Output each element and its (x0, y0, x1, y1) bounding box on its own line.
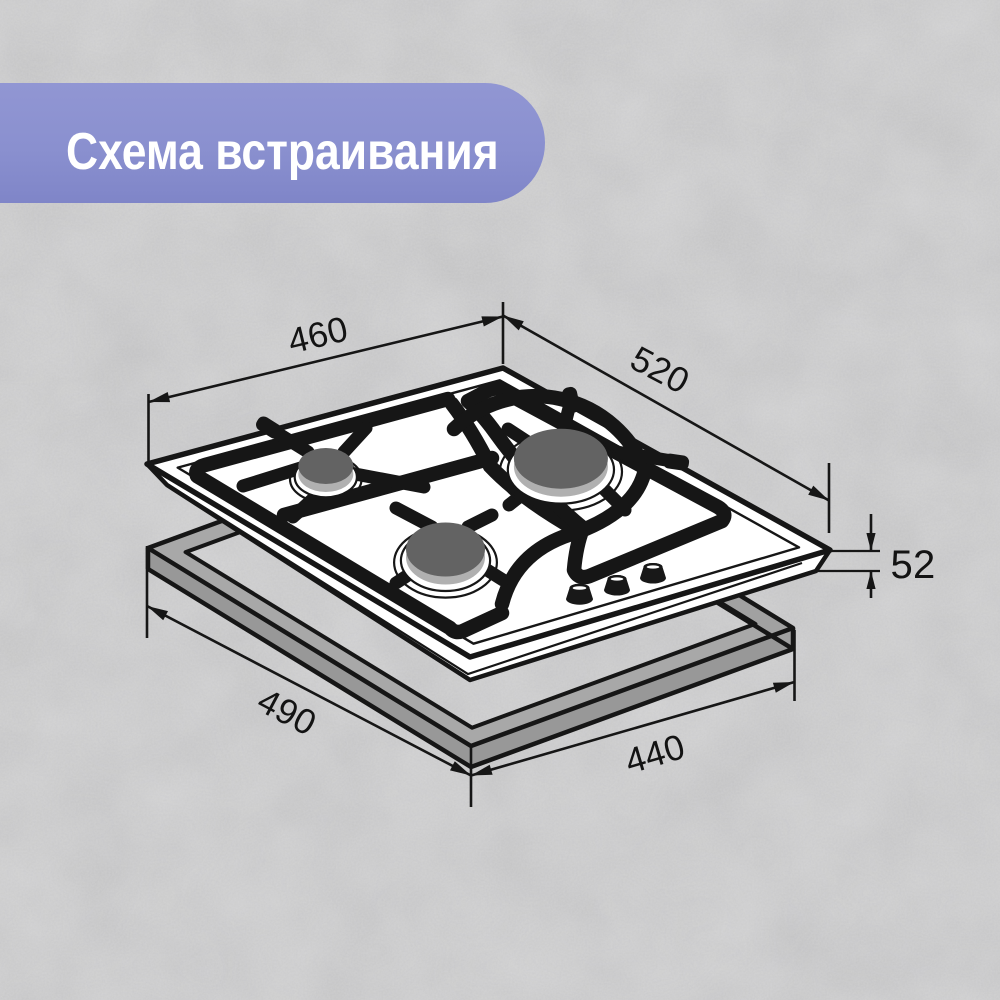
svg-text:52: 52 (890, 543, 935, 587)
svg-text:Схема встраивания: Схема встраивания (66, 123, 499, 181)
